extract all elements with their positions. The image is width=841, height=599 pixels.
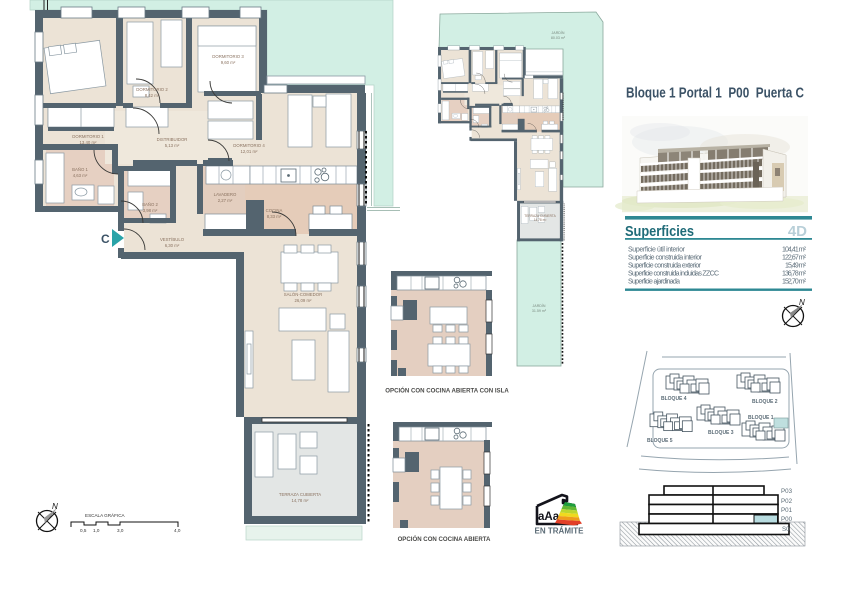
svg-text:DISTRIBUIDOR: DISTRIBUIDOR [157,137,188,142]
svg-text:P02: P02 [781,498,793,505]
svg-text:3,98 m²: 3,98 m² [143,208,158,213]
svg-text:9,60 m²: 9,60 m² [221,60,236,65]
svg-text:BLOQUE 1: BLOQUE 1 [748,415,774,421]
svg-text:4,63 m²: 4,63 m² [73,173,88,178]
svg-text:P03: P03 [781,488,793,495]
svg-text:26,09 m²: 26,09 m² [295,298,313,303]
svg-text:Superficie construida incluida: Superficie construida incluidas ZZCC [628,271,719,278]
svg-text:8,33 m²: 8,33 m² [267,214,282,219]
svg-text:6,30 m²: 6,30 m² [165,243,180,248]
svg-text:S0: S0 [782,526,790,533]
svg-text:DORMITORIO 1: DORMITORIO 1 [72,134,104,139]
svg-text:OPCIÓN CON COCINA ABIERTA: OPCIÓN CON COCINA ABIERTA [398,535,491,543]
svg-text:BLOQUE 5: BLOQUE 5 [647,438,673,444]
svg-text:P01: P01 [781,507,793,514]
svg-text:BAÑO 1: BAÑO 1 [72,167,88,172]
svg-text:14,78 m²: 14,78 m² [292,498,310,503]
svg-text:LAVADERO: LAVADERO [214,192,237,197]
svg-text:136,78 m²: 136,78 m² [782,271,807,278]
svg-text:104,41 m²: 104,41 m² [782,247,807,254]
svg-text:VESTÍBULO: VESTÍBULO [160,237,185,242]
svg-text:Superficies: Superficies [625,223,694,240]
svg-text:3,0: 3,0 [117,528,124,533]
svg-text:8,42 m²: 8,42 m² [145,93,160,98]
svg-text:Superficie construida interior: Superficie construida interior [628,255,703,262]
svg-text:2,27 m²: 2,27 m² [218,198,233,203]
svg-text:Superficie ajardinada: Superficie ajardinada [628,279,680,286]
svg-text:DORMITORIO 3: DORMITORIO 3 [212,54,244,59]
svg-text:JARDÍN: JARDÍN [533,304,546,308]
svg-text:N: N [52,502,58,511]
svg-text:0,5: 0,5 [80,528,87,533]
svg-text:12,01 m²: 12,01 m² [241,149,259,154]
svg-text:DORMITORIO 2: DORMITORIO 2 [136,87,168,92]
svg-text:31.59 m²: 31.59 m² [532,309,547,313]
svg-text:15,49 m²: 15,49 m² [785,263,807,270]
svg-text:DORMITORIO 4: DORMITORIO 4 [233,143,265,148]
svg-text:JARDÍN: JARDÍN [552,31,565,35]
svg-text:C: C [101,232,110,246]
svg-text:OPCIÓN CON COCINA ABIERTA CON: OPCIÓN CON COCINA ABIERTA CON ISLA [385,387,509,395]
svg-text:BLOQUE 4: BLOQUE 4 [661,396,687,402]
svg-text:13,40 m²: 13,40 m² [80,140,98,145]
svg-text:BLOQUE 3: BLOQUE 3 [708,430,734,436]
svg-text:Superficie útil interior: Superficie útil interior [628,247,686,254]
svg-text:14,78 m²: 14,78 m² [534,218,547,222]
svg-text:N: N [799,298,805,307]
svg-text:122,67 m²: 122,67 m² [782,255,807,262]
svg-text:Superficie construida exterior: Superficie construida exterior [628,263,702,270]
svg-text:1,0: 1,0 [93,528,100,533]
svg-text:COCINA: COCINA [266,208,283,213]
svg-text:SALÓN-COMEDOR: SALÓN-COMEDOR [284,292,322,297]
svg-text:EN TRÁMITE: EN TRÁMITE [535,527,585,536]
svg-text:152,70 m²: 152,70 m² [782,279,807,286]
svg-text:BLOQUE 2: BLOQUE 2 [752,399,778,405]
svg-text:4,0: 4,0 [174,528,181,533]
svg-text:80.03 m²: 80.03 m² [551,36,566,40]
svg-text:ESCALA GRÁFICA: ESCALA GRÁFICA [85,512,126,518]
svg-text:5,13 m²: 5,13 m² [165,143,180,148]
svg-text:TERRAZA CUBIERTA: TERRAZA CUBIERTA [279,492,321,497]
svg-text:4D: 4D [788,223,807,240]
svg-text:Bloque 1 Portal 1 P00 Puerta: Bloque 1 Portal 1 P00 Puerta C [626,86,804,102]
svg-text:BAÑO 2: BAÑO 2 [142,202,158,207]
svg-text:P00: P00 [781,516,793,523]
